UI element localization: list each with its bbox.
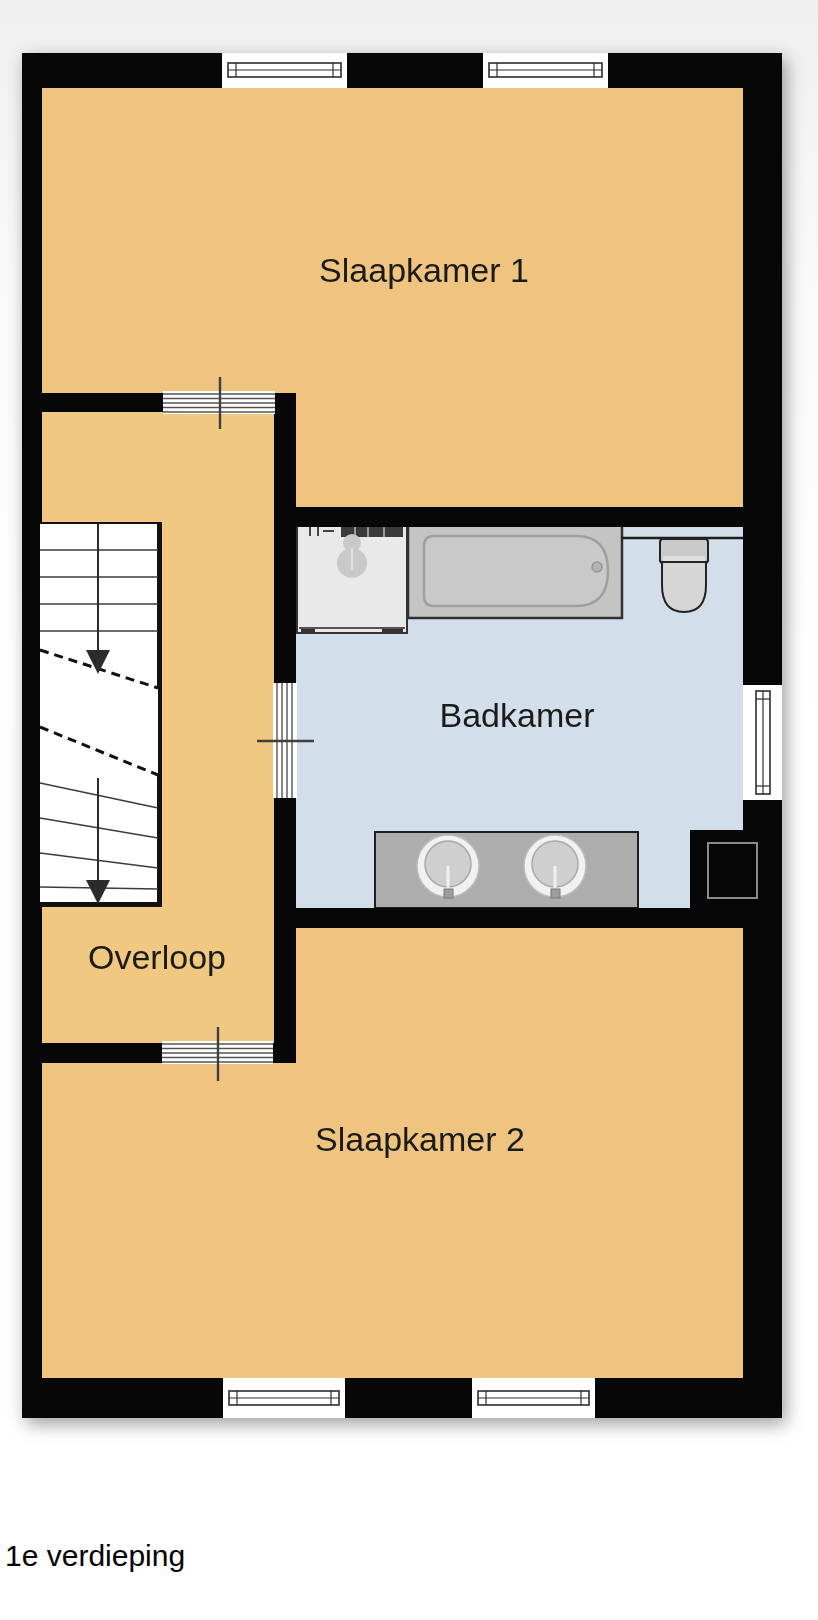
floor-plan-drawing: Slaapkamer 1 Badkamer Overloop Slaapkame… bbox=[0, 0, 818, 1620]
bathtub-inner bbox=[424, 536, 608, 606]
label-overloop: Overloop bbox=[88, 938, 226, 976]
floor-plan: Slaapkamer 1 Badkamer Overloop Slaapkame… bbox=[22, 53, 782, 1418]
washing-machine bbox=[297, 525, 407, 633]
window-top-1 bbox=[222, 53, 347, 88]
double-sink-vanity bbox=[375, 832, 638, 908]
window-bottom-2 bbox=[472, 1378, 595, 1418]
washer-foot bbox=[301, 629, 315, 633]
sink-faucet bbox=[444, 889, 453, 898]
bathtub bbox=[408, 523, 622, 618]
duct-shaft bbox=[690, 830, 782, 928]
label-slaapkamer-1: Slaapkamer 1 bbox=[319, 251, 529, 289]
duct-shaft-block bbox=[690, 830, 782, 928]
sink-right bbox=[524, 835, 586, 898]
toilet-bowl bbox=[662, 562, 706, 612]
wall-badkamer-top bbox=[296, 507, 743, 527]
staircase bbox=[40, 522, 162, 907]
label-slaapkamer-2: Slaapkamer 2 bbox=[315, 1120, 525, 1158]
toilet bbox=[660, 539, 708, 612]
stair-border-bottom bbox=[40, 902, 162, 907]
vanity-counter bbox=[375, 832, 638, 908]
window-bottom-1 bbox=[223, 1378, 345, 1418]
window-top-2 bbox=[483, 53, 608, 88]
sink-left bbox=[417, 835, 479, 898]
label-badkamer: Badkamer bbox=[440, 696, 595, 734]
floor-caption: 1e verdieping bbox=[5, 1539, 185, 1572]
sink-faucet bbox=[551, 889, 560, 898]
window-right-badkamer bbox=[743, 685, 782, 800]
wall-badkamer-bottom bbox=[296, 908, 743, 928]
floor-plan-page: Slaapkamer 1 Badkamer Overloop Slaapkame… bbox=[0, 0, 818, 1620]
washer-foot bbox=[382, 629, 403, 633]
bathtub-drain bbox=[592, 562, 602, 572]
